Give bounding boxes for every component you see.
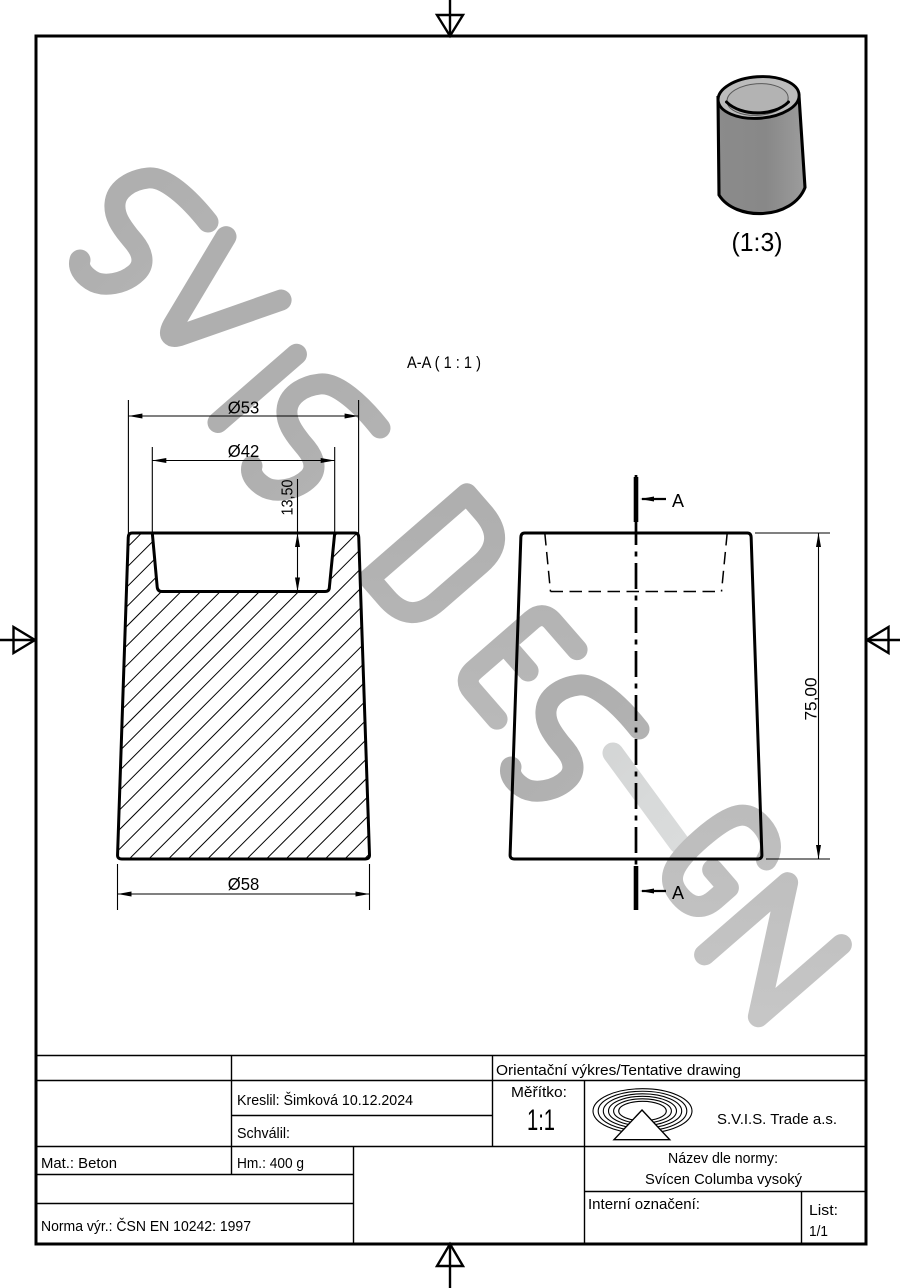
svg-text:Měřítko:: Měřítko: — [511, 1084, 567, 1101]
svg-text:Mat.: Beton: Mat.: Beton — [41, 1155, 117, 1172]
svg-text:A-A ( 1 : 1 ): A-A ( 1 : 1 ) — [407, 354, 481, 372]
svg-text:Orientační výkres/Tentative dr: Orientační výkres/Tentative drawing — [496, 1062, 741, 1079]
svg-text:Ø42: Ø42 — [228, 441, 260, 461]
svg-text:Ø58: Ø58 — [228, 874, 260, 894]
svg-text:List:: List: — [809, 1202, 838, 1219]
svg-text:Interní označení:: Interní označení: — [588, 1196, 700, 1213]
svg-text:1/1: 1/1 — [809, 1223, 828, 1240]
svg-text:Norma výr.: ČSN EN 10242: 1997: Norma výr.: ČSN EN 10242: 1997 — [41, 1218, 251, 1235]
svg-text:A: A — [672, 491, 684, 511]
svg-text:Svícen Columba vysoký: Svícen Columba vysoký — [645, 1171, 802, 1188]
svg-text:(1:3): (1:3) — [732, 227, 783, 257]
svg-text:S.V.I.S. Trade a.s.: S.V.I.S. Trade a.s. — [717, 1111, 837, 1128]
svg-text:Ø53: Ø53 — [228, 398, 260, 418]
svg-text:75,00: 75,00 — [802, 678, 821, 721]
svg-text:Schválil:: Schválil: — [237, 1125, 290, 1142]
svg-text:Kreslil: Šimková 10.12.2024: Kreslil: Šimková 10.12.2024 — [237, 1092, 413, 1109]
svg-text:Název dle normy:: Název dle normy: — [668, 1150, 778, 1167]
svg-text:Hm.: 400 g: Hm.: 400 g — [237, 1155, 304, 1172]
svg-text:13,50: 13,50 — [280, 479, 297, 515]
svg-text:A: A — [672, 883, 684, 903]
svg-text:1:1: 1:1 — [527, 1104, 555, 1137]
